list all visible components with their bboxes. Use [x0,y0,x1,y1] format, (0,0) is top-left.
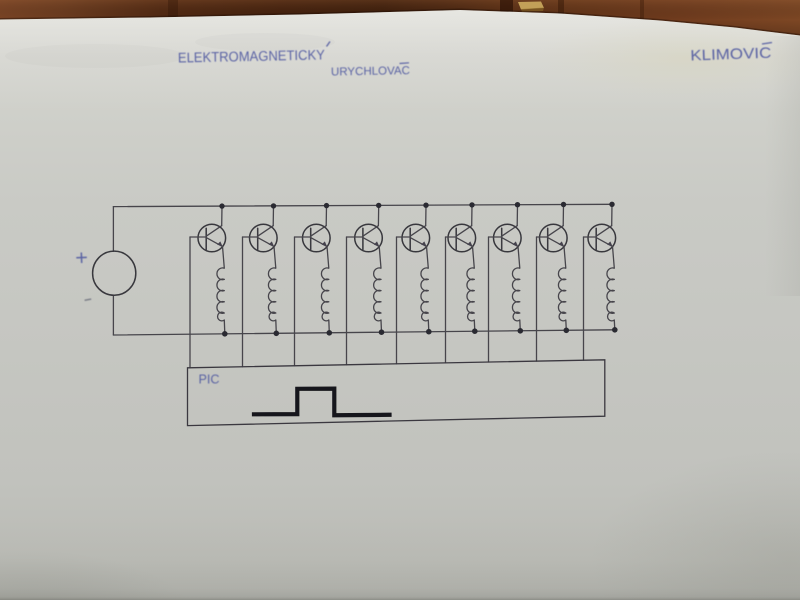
svg-text:KLIMOVIC: KLIMOVIC [690,45,772,65]
svg-text:PIC: PIC [199,372,220,387]
svg-text:ELEKTROMAGNETICKY: ELEKTROMAGNETICKY [178,46,326,65]
svg-text:URYCHLOVAC: URYCHLOVAC [331,65,410,78]
